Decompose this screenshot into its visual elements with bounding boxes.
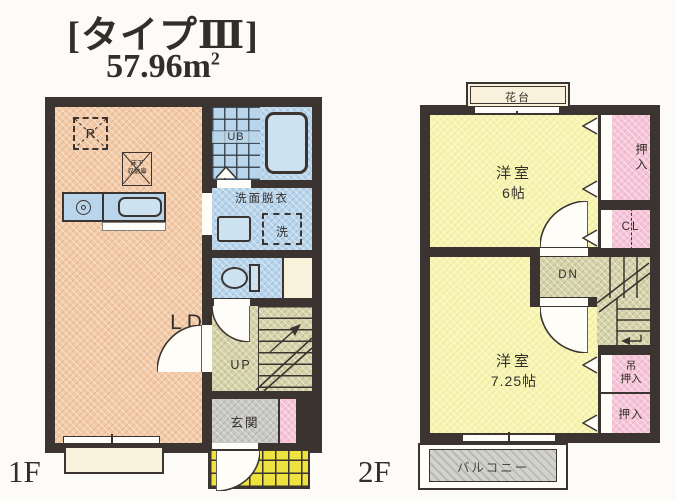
toilet-bowl-icon	[221, 267, 248, 289]
folding-door-icon	[215, 166, 237, 179]
fridge-space: R	[73, 117, 108, 150]
stair-lines-2f-icon	[597, 257, 650, 345]
kitchen-burner-icon	[76, 200, 91, 215]
underfloor-storage: 床下収納庫	[122, 152, 152, 186]
toilet-tank-icon	[249, 264, 260, 292]
washbasin	[217, 216, 251, 242]
sliding-door-oshiire-bottom	[600, 394, 612, 433]
entrance-label: 玄関	[212, 412, 278, 431]
room-washroom: 洗面脱衣 洗	[212, 188, 312, 250]
room-725jo	[430, 257, 530, 433]
flower-shelf: 花台	[466, 82, 570, 108]
flower-shelf-label: 花台	[471, 89, 565, 105]
stair-landing-dn: DN	[540, 257, 597, 297]
closet-cl-label: CL	[612, 221, 650, 233]
underfloor-storage-label: 床下収納庫	[123, 160, 151, 176]
door-arc-ldk-icon	[157, 325, 202, 372]
plan-area-title: 57.96m2	[36, 48, 290, 86]
porch	[208, 449, 310, 489]
room-toilet	[212, 258, 282, 298]
closet-hanging: 吊押入	[612, 355, 650, 392]
room-stair-hall: UP	[212, 306, 312, 391]
counter-front-edge	[102, 222, 166, 231]
closet-hanging-label: 吊押入	[612, 360, 650, 386]
balcony: バルコニー	[429, 449, 557, 482]
closet-oshiire-top: 押入	[612, 115, 650, 200]
door-arc-room6-icon	[540, 201, 588, 247]
floor1-label: 1F	[8, 454, 41, 490]
kitchen-sink	[118, 197, 162, 217]
floorplan-page: [タイプⅢ] 57.96m2 R 床下収納庫	[0, 0, 676, 501]
closet-oshiire-top-label: 押入	[612, 133, 650, 183]
opening-chevron-icon	[582, 180, 598, 198]
door-arc-porch-icon	[216, 451, 260, 491]
door-gap-room725	[540, 298, 588, 306]
room-ldk: R 床下収納庫 LDK 10.5帖	[55, 107, 202, 443]
opening-chevron-icon	[582, 356, 598, 374]
counter-divider	[102, 194, 104, 220]
plan-area-exponent: 2	[211, 49, 220, 69]
room-entrance: 玄関	[212, 399, 278, 443]
closet-cl: CL	[612, 210, 650, 248]
door-gap-washroom	[202, 193, 212, 235]
washroom-label: 洗面脱衣	[212, 190, 312, 206]
door-gap-room6	[540, 248, 588, 256]
washing-machine-space: 洗	[262, 213, 302, 245]
fridge-label: R	[75, 126, 106, 141]
sliding-door-hanging-closet	[600, 355, 612, 392]
toilet-side-strip	[284, 258, 312, 298]
window-2f-bottom	[462, 434, 556, 442]
room-unit-bath: UB	[212, 107, 312, 180]
window-ldk	[63, 436, 160, 444]
stairs-up-label: UP	[224, 358, 258, 372]
opening-chevron-icon	[582, 414, 598, 432]
closet-oshiire-bottom-label: 押入	[612, 406, 650, 422]
balcony-label: バルコニー	[430, 457, 556, 476]
door-gap-toilet	[214, 299, 250, 306]
floor2-label: 2F	[358, 454, 391, 490]
closet-oshiire-bottom: 押入	[612, 394, 650, 433]
stairs-dn-label: DN	[540, 269, 597, 281]
door-gap-ldk	[202, 325, 212, 372]
kitchen-counter	[62, 192, 166, 222]
plan-1f: R 床下収納庫 LDK 10.5帖	[45, 97, 322, 453]
stairs-2f	[597, 257, 650, 345]
sliding-door-cl	[600, 210, 612, 248]
unit-bath-label: UB	[212, 131, 260, 143]
plan-area-value: 57.96m	[106, 48, 211, 85]
room-725jo-label: 洋室 7.25帖	[430, 350, 598, 391]
entrance-side-strip	[280, 399, 296, 443]
room-6jo-label: 洋室 6帖	[430, 162, 598, 203]
window-tick-icon	[111, 434, 113, 446]
flower-shelf-inner: 花台	[470, 86, 566, 104]
opening-chevron-icon	[582, 229, 598, 247]
window-2f-top	[474, 106, 560, 114]
bathtub	[265, 112, 308, 174]
terrace	[64, 446, 164, 474]
door-gap-unit-bath	[217, 180, 251, 188]
washing-machine-label: 洗	[264, 223, 300, 240]
door-arc-toilet-icon	[212, 306, 250, 342]
balcony-outer: バルコニー	[418, 443, 568, 490]
sliding-door-oshiire-top	[600, 115, 612, 200]
plan-2f: 花台 洋室 6帖 洋室 7.25帖 DN	[420, 105, 660, 443]
kitchen-burner-center	[81, 205, 86, 210]
opening-chevron-icon	[582, 117, 598, 135]
door-arc-room725-icon	[540, 307, 588, 353]
